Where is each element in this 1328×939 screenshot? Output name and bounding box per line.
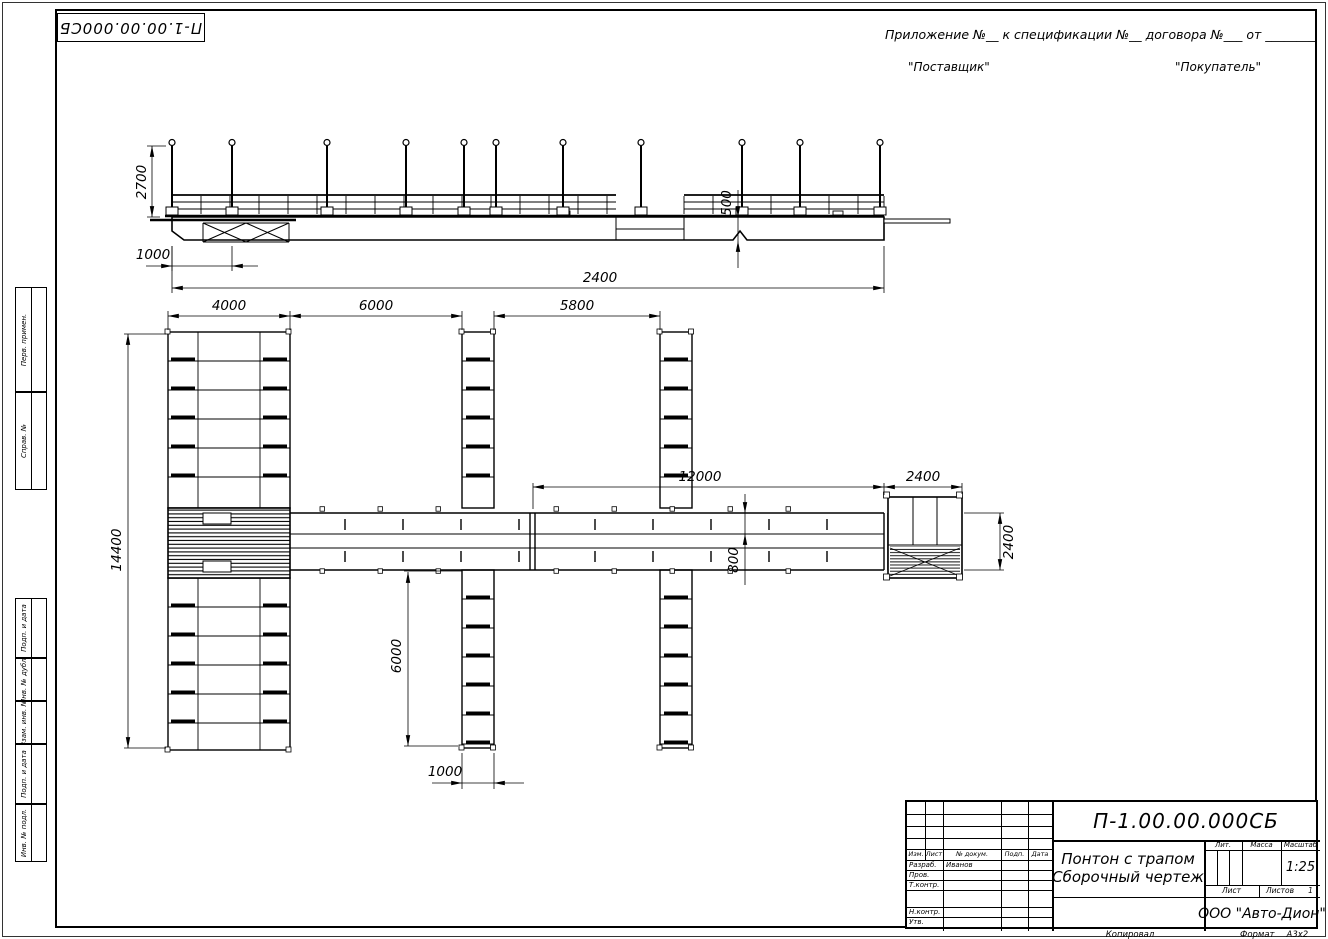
lit-label: Лит.: [1204, 840, 1242, 850]
doc-number: П-1.00.00.000СБ: [1052, 802, 1320, 840]
col-list: Лист: [925, 849, 943, 860]
margin-box-vzam-inv: Взам. инв. №: [15, 701, 47, 744]
title-block: Изм. Лист № докум. Подп. Дата Разраб. Ив…: [905, 800, 1318, 929]
supplier-label: "Поставщик": [908, 60, 990, 74]
buyer-label: "Покупатель": [1175, 60, 1261, 74]
col-podp: Подп.: [1001, 849, 1028, 860]
row-razrab: Разраб.: [907, 860, 943, 870]
col-dokum: № докум.: [943, 849, 1001, 860]
margin-box-inv-podl: Инв. № подл.: [15, 804, 47, 862]
title-line1: Понтон с трапом: [1061, 852, 1195, 867]
row-nkontr: Н.контр.: [907, 907, 943, 917]
row-utv: Утв.: [907, 917, 943, 927]
drawing-frame: [55, 9, 1317, 928]
row-tkontr: Т.контр.: [907, 880, 943, 890]
razrab-name: Иванов: [944, 860, 1000, 870]
col-izm: Изм.: [907, 849, 925, 860]
drawing-title: Понтон с трапом Сборочный чертеж: [1052, 840, 1204, 897]
listov-value: 1: [1301, 885, 1320, 897]
list-label: Лист: [1204, 885, 1259, 897]
col-data: Дата: [1028, 849, 1052, 860]
drawing-sheet: П-1.00.00.000СБ Приложение №__ к специфи…: [0, 0, 1328, 939]
margin-label: Перв. примен.: [20, 313, 28, 366]
contract-header-line: Приложение №__ к спецификации №__ догово…: [885, 27, 1317, 42]
corner-stamp: П-1.00.00.000СБ: [57, 13, 205, 42]
corner-stamp-number: П-1.00.00.000СБ: [59, 19, 202, 37]
row-prov: Пров.: [907, 870, 943, 880]
masshtab-label: Масштаб: [1281, 840, 1320, 850]
scale-value: 1:25: [1281, 850, 1320, 885]
margin-box-perv-primen: Перв. примен.: [15, 287, 47, 392]
margin-label: Инв. № дубл.: [20, 656, 28, 704]
margin-label: Взам. инв. №: [20, 699, 28, 747]
title-line2: Сборочный чертеж: [1052, 870, 1204, 885]
margin-label: Подп. и дата: [20, 604, 28, 652]
margin-box-podp-data-1: Подп. и дата: [15, 598, 47, 658]
listov-label: Листов: [1259, 885, 1301, 897]
margin-box-sprav: Справ. №: [15, 392, 47, 490]
format-note: Формат А3х2: [1240, 930, 1308, 939]
company-name: ООО "Авто-Дион": [1204, 897, 1320, 931]
format-label: Формат: [1240, 930, 1275, 939]
margin-box-podp-data-2: Подп. и дата: [15, 744, 47, 804]
margin-label: Справ. №: [20, 424, 28, 458]
margin-label: Инв. № подл.: [20, 809, 28, 857]
kopiroval-label: Копировал: [1080, 930, 1180, 939]
margin-box-inv-dubl: Инв. № дубл.: [15, 658, 47, 701]
margin-label: Подп. и дата: [20, 750, 28, 798]
massa-label: Масса: [1242, 840, 1281, 850]
format-value: А3х2: [1287, 930, 1309, 939]
